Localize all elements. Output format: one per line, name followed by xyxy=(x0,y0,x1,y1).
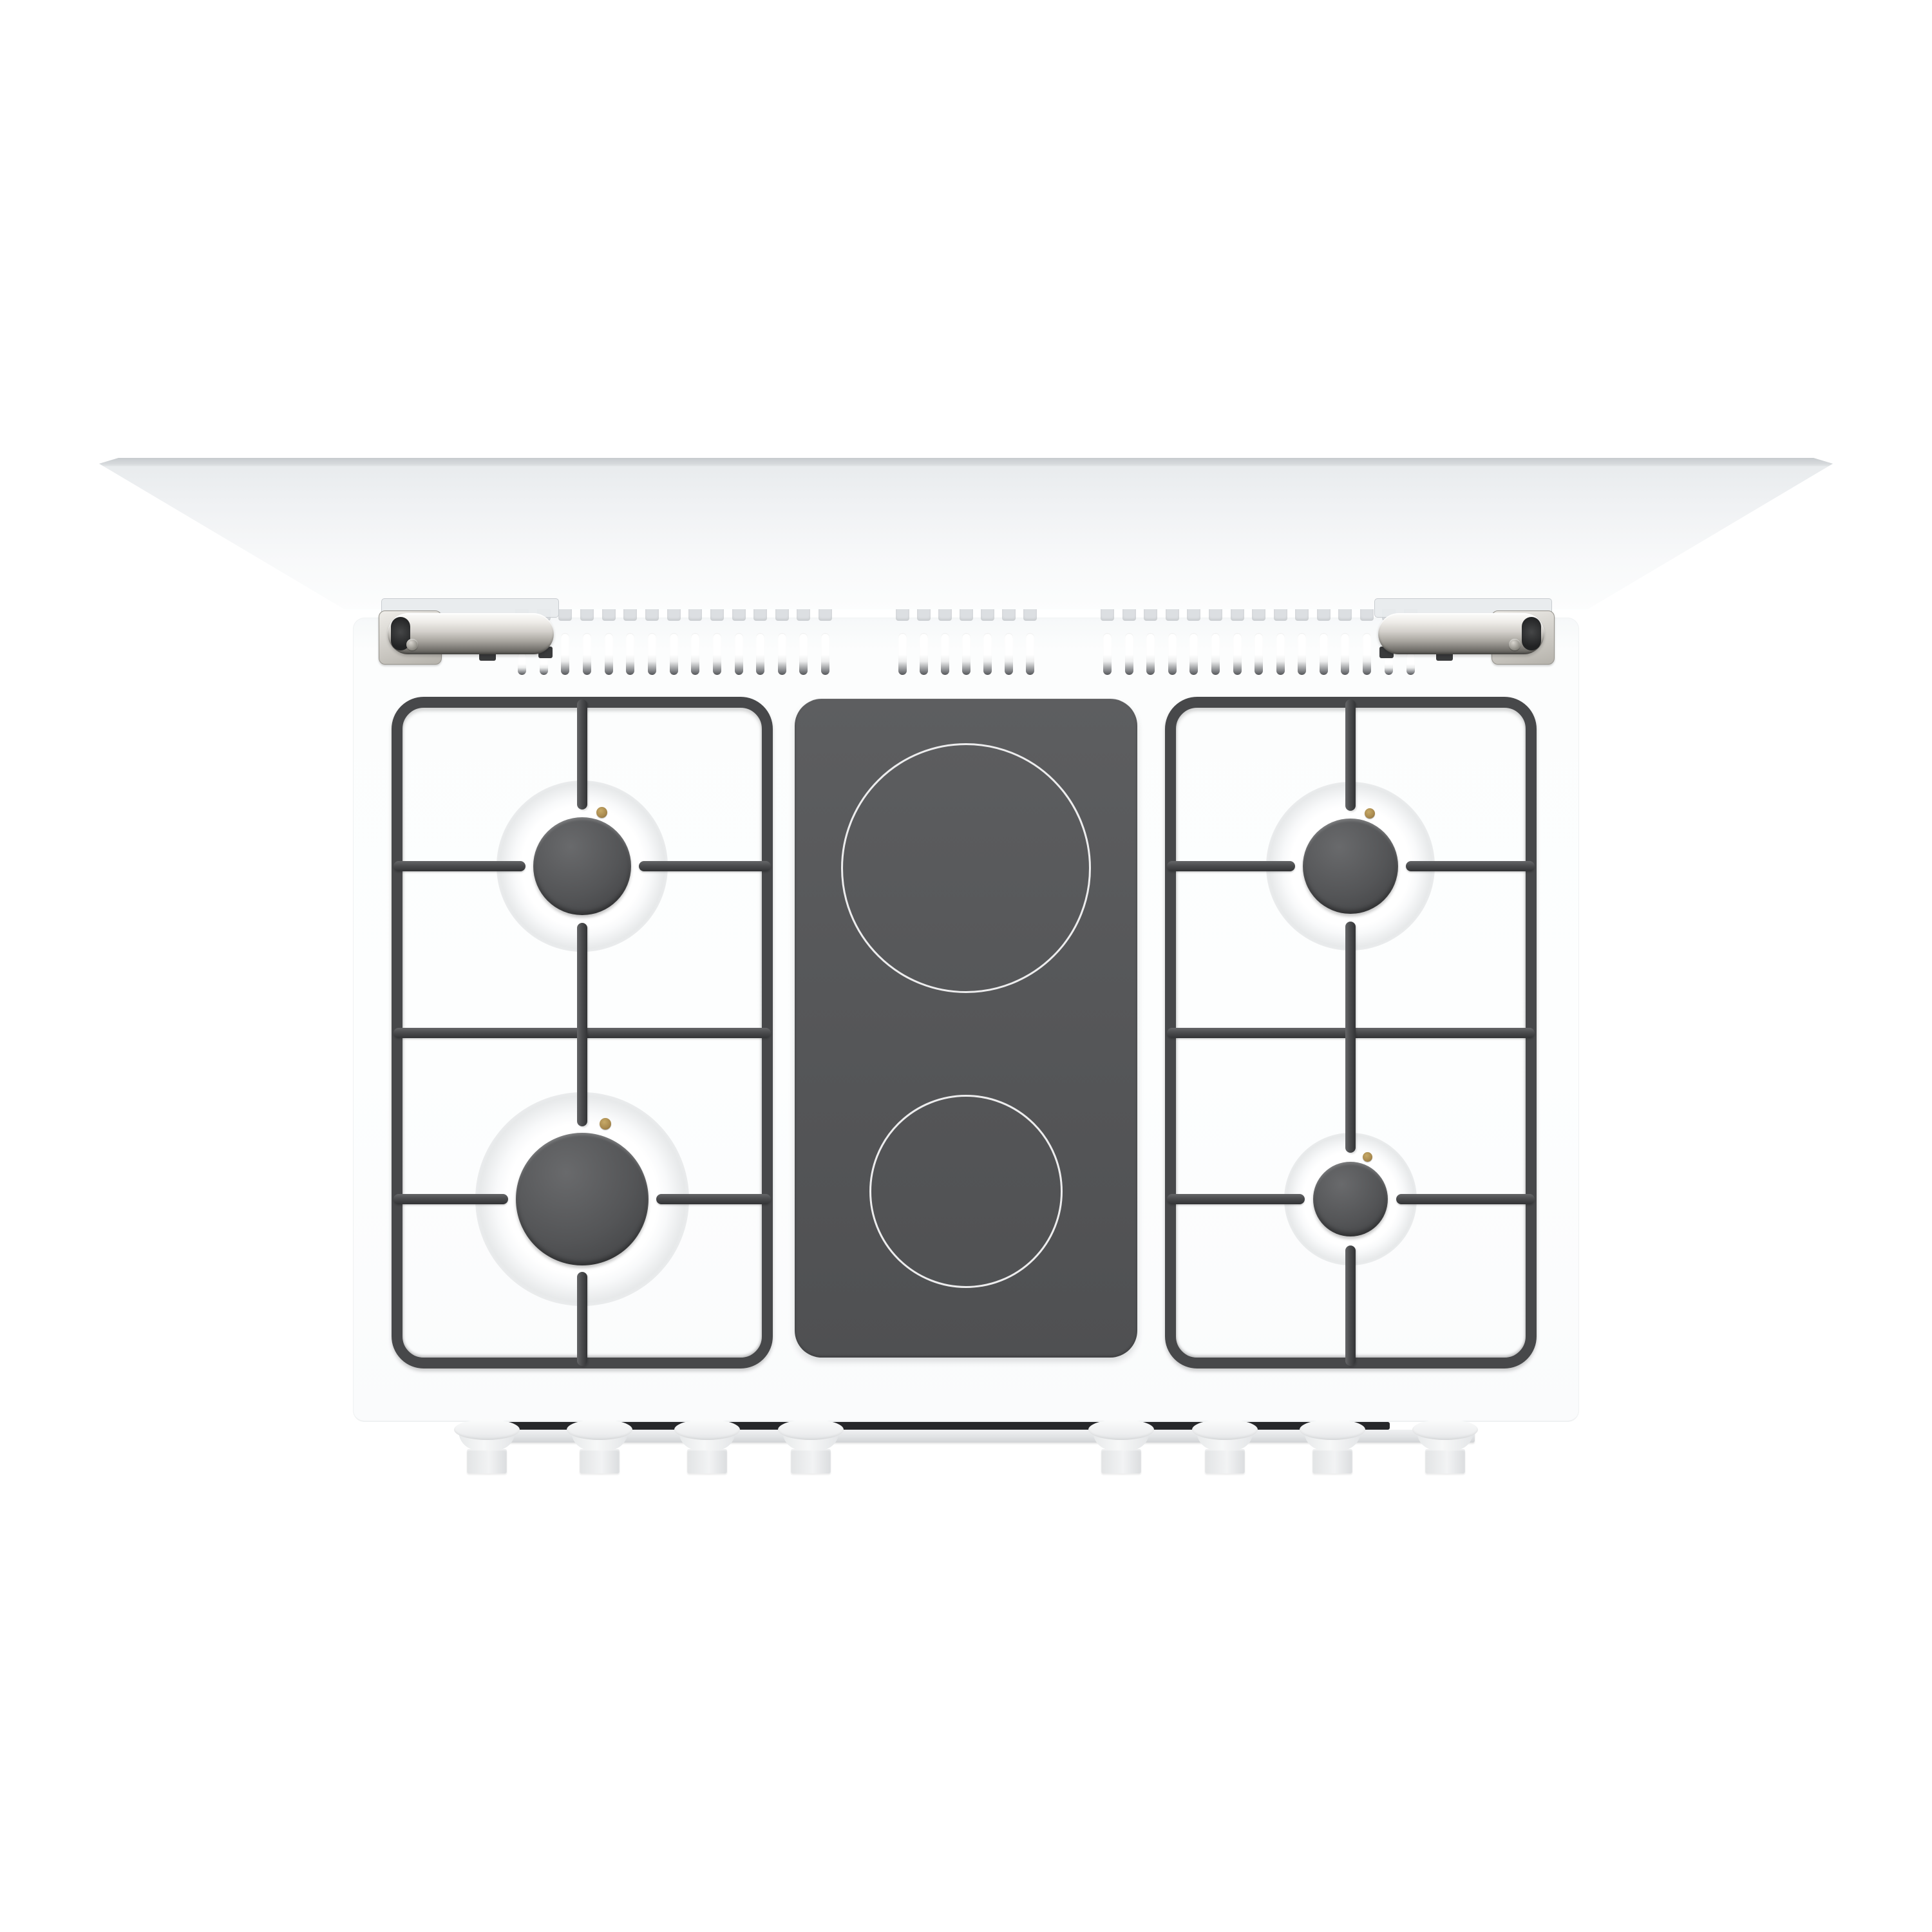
lid-edge-tab xyxy=(645,609,659,621)
grate-bar xyxy=(577,699,587,810)
lid-edge-tab xyxy=(710,609,724,621)
lid-edge-tab xyxy=(938,609,952,621)
vent-slot xyxy=(691,633,699,675)
knob-cap xyxy=(567,1419,632,1440)
lid-edge-tab xyxy=(753,609,767,621)
lid-edge-tab xyxy=(1144,609,1157,621)
grate-bar xyxy=(1167,861,1295,871)
vent-slot xyxy=(778,633,786,675)
burner-cap-medium xyxy=(533,817,631,915)
knob-cap xyxy=(1192,1419,1258,1440)
lid-edge-tab xyxy=(732,609,746,621)
vent-slot xyxy=(983,633,992,675)
vent-slot xyxy=(626,633,634,675)
lid-edge-tab xyxy=(1295,609,1309,621)
vent-slot xyxy=(561,633,569,675)
lid-edge-tab xyxy=(1101,609,1114,621)
lid-edge-tab xyxy=(688,609,702,621)
lid-edge-tab xyxy=(1231,609,1244,621)
lid-edge-tab xyxy=(981,609,994,621)
burner-cap-large xyxy=(516,1133,649,1265)
vent-slot xyxy=(799,633,808,675)
lid-edge-tab xyxy=(1274,609,1287,621)
vent-slot xyxy=(1276,633,1285,675)
lid-edge-tab xyxy=(667,609,681,621)
lid-edge-tab xyxy=(960,609,973,621)
lid-edge-tab xyxy=(580,609,594,621)
lid-edge-tab xyxy=(1187,609,1200,621)
vent-slot xyxy=(1298,633,1306,675)
grate-bar xyxy=(1167,1194,1305,1204)
vent-slot xyxy=(735,633,743,675)
knob-foot xyxy=(791,1449,831,1473)
vent-slot xyxy=(1255,633,1263,675)
knob-foot xyxy=(1312,1449,1352,1473)
vent-slot xyxy=(583,633,591,675)
igniter-electrode xyxy=(1363,1152,1372,1162)
vent-slot xyxy=(605,633,613,675)
ceramic-zone-ring-large xyxy=(841,743,1091,993)
burner-cap-medium xyxy=(1303,819,1398,914)
grate-bar xyxy=(1345,922,1356,1153)
grate-bar xyxy=(577,1272,587,1366)
scene xyxy=(0,0,1932,1932)
vent-slot xyxy=(920,633,928,675)
vent-slot xyxy=(1406,652,1415,675)
vent-slot xyxy=(648,633,656,675)
vent-slot xyxy=(898,633,907,675)
grate-bar xyxy=(1345,1245,1356,1366)
vent-slot xyxy=(1026,633,1034,675)
vent-slot xyxy=(941,633,949,675)
vent-slot xyxy=(756,633,764,675)
knob-cap xyxy=(674,1419,740,1440)
grate-bar xyxy=(656,1194,771,1204)
knob-foot xyxy=(1425,1449,1465,1473)
lid-edge-tab xyxy=(558,609,572,621)
igniter-electrode xyxy=(600,1118,611,1130)
vent-slot xyxy=(1189,633,1198,675)
lid-edge-tab xyxy=(1360,609,1374,621)
lid-edge-tab xyxy=(602,609,616,621)
lid-edge-tab xyxy=(623,609,637,621)
grate-bar xyxy=(639,861,771,871)
hinge-barrel-endcap xyxy=(1522,617,1541,650)
hinge-barrel xyxy=(1378,613,1544,654)
knob-cap xyxy=(1300,1419,1365,1440)
knob-cap xyxy=(1412,1419,1478,1440)
grate-bar xyxy=(1345,699,1356,811)
lid-edge-tab xyxy=(1166,609,1179,621)
knob-cap xyxy=(778,1419,844,1440)
hinge-screw xyxy=(1509,639,1520,650)
vent-slot xyxy=(1363,633,1371,675)
vent-slot xyxy=(670,633,678,675)
knob-cap xyxy=(454,1419,520,1440)
knob-foot xyxy=(687,1449,727,1473)
lid-edge-tab xyxy=(1317,609,1331,621)
knob-cap xyxy=(1088,1419,1154,1440)
lid-edge-tab xyxy=(1252,609,1265,621)
vent-slot xyxy=(713,633,721,675)
knob-foot xyxy=(1205,1449,1245,1473)
grate-bar xyxy=(393,861,526,871)
lid-edge-tab xyxy=(1209,609,1222,621)
grate-bar xyxy=(1396,1194,1535,1204)
knob-foot xyxy=(467,1449,507,1473)
vent-slot xyxy=(1103,633,1112,675)
vent-slot xyxy=(1005,633,1013,675)
lid-edge-tab xyxy=(1002,609,1016,621)
igniter-electrode xyxy=(1365,808,1375,819)
lid-edge-tab xyxy=(917,609,931,621)
lid-edge-tab xyxy=(819,609,832,621)
vent-slot xyxy=(1146,633,1155,675)
lid-edge-tab xyxy=(896,609,909,621)
vent-slot xyxy=(1320,633,1328,675)
vent-slot xyxy=(1211,633,1220,675)
hinge-screw xyxy=(406,639,418,650)
grate-bar xyxy=(577,923,587,1126)
lid-top-edge xyxy=(99,458,1833,466)
lid-edge-tab xyxy=(775,609,789,621)
lid-edge-tab xyxy=(1338,609,1352,621)
burner-cap-small xyxy=(1313,1162,1388,1236)
vent-slot xyxy=(518,652,526,675)
vent-slot xyxy=(1233,633,1242,675)
lid-edge-tab xyxy=(1122,609,1136,621)
grate-bar xyxy=(393,1194,508,1204)
lid-glass-open xyxy=(99,458,1833,611)
knob-foot xyxy=(580,1449,620,1473)
lid-edge-tab xyxy=(1023,609,1037,621)
grate-bar xyxy=(1406,861,1535,871)
vent-slot xyxy=(821,633,829,675)
vent-slot xyxy=(1168,633,1177,675)
lid-edge-tab xyxy=(797,609,810,621)
vent-slot xyxy=(962,633,971,675)
vent-slot xyxy=(1125,633,1133,675)
vent-slot xyxy=(1341,633,1349,675)
ceramic-zone-ring-small xyxy=(869,1095,1063,1288)
knob-foot xyxy=(1101,1449,1141,1473)
igniter-electrode xyxy=(596,807,607,818)
